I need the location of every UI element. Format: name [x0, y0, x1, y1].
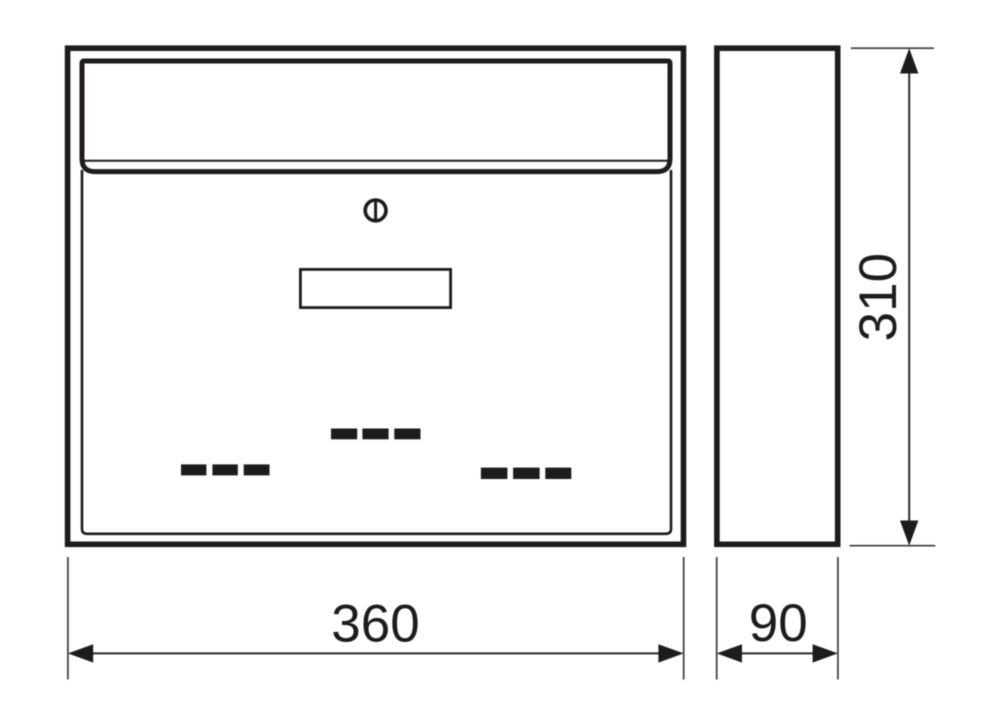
svg-text:310: 310	[849, 253, 908, 341]
svg-text:360: 360	[331, 595, 419, 654]
svg-text:90: 90	[749, 594, 808, 653]
